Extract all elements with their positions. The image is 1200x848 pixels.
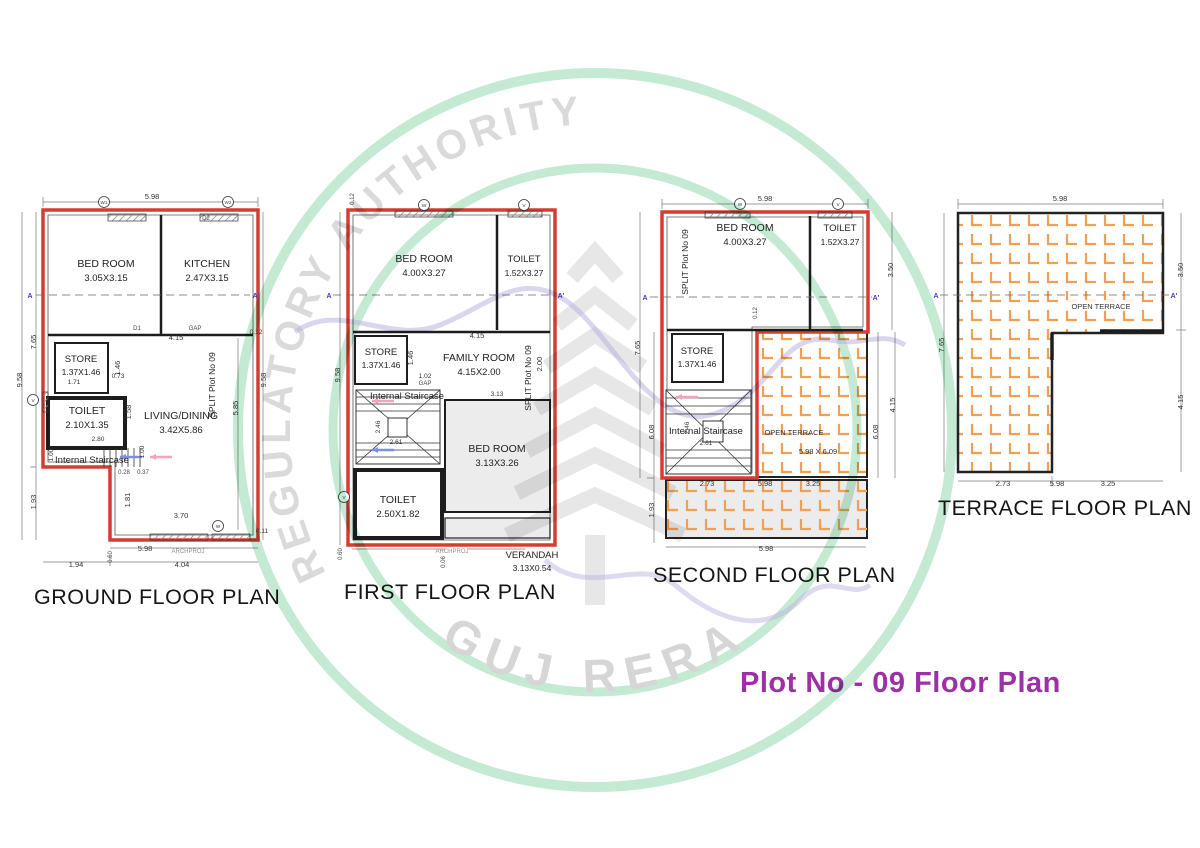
room-size: 2.50X1.82: [376, 509, 419, 520]
first-windows: [395, 211, 542, 217]
section-mark-a2: A': [1171, 293, 1178, 300]
room-size: 3.05X3.15: [84, 273, 127, 284]
room-name: BED ROOM: [468, 443, 525, 455]
room-size: 1.37X1.46: [62, 367, 101, 377]
room-size: 1.37X1.46: [678, 359, 717, 369]
plan-title-terrace: TERRACE FLOOR PLAN: [938, 496, 1192, 520]
room-name: OPEN TERRACE: [1071, 302, 1130, 311]
dim-label: 7.65: [29, 335, 38, 350]
room-size: 1.52X3.27: [505, 268, 544, 278]
room-size: 3.13X3.26: [475, 458, 518, 469]
dim-label: 1.93: [29, 495, 38, 510]
section-mark-a: A: [27, 293, 32, 300]
plan-title-second: SECOND FLOOR PLAN: [653, 563, 896, 587]
first-bed2-room: [445, 400, 550, 512]
dim-label: 5.98: [758, 194, 773, 203]
dim-label: 1.94: [69, 560, 84, 569]
dim-label: 5.98: [145, 192, 160, 201]
room-size: 3.42X5.86: [159, 425, 202, 436]
second-store-room: [672, 334, 723, 382]
dim-label: 4.04: [175, 560, 190, 569]
gap-tag: GAP: [189, 326, 202, 332]
dim-label: 4.15: [169, 333, 184, 342]
dim-label: 1.81: [123, 493, 132, 508]
dim-label: 1.02: [419, 373, 432, 380]
room-size: 1.37X1.46: [362, 360, 401, 370]
dim-label: 3.50: [1176, 263, 1185, 278]
dim-label: 5.98: [1053, 194, 1068, 203]
dim-label: 0.12: [753, 307, 759, 319]
window-tag-w1: W1: [101, 200, 108, 205]
plan-title-ground: GROUND FLOOR PLAN: [34, 585, 280, 609]
room-name: KITCHEN: [184, 258, 230, 270]
dim-label: 3.25: [806, 479, 821, 488]
dim-label: 0.06: [441, 556, 447, 568]
floor-plan-sheet: W1 W2 V W 5.98 D2 BED ROOM 3.05X3.15 KIT…: [0, 0, 1200, 848]
room-name: TOILET: [823, 223, 856, 234]
dim-label: 6.08: [871, 425, 880, 440]
dim-label: 1.58: [124, 405, 133, 420]
window-tag-w2: W2: [225, 200, 232, 205]
dim-label: 3.70: [174, 511, 189, 520]
plan-title-first: FIRST FLOOR PLAN: [344, 580, 556, 604]
sheet-heading: Plot No - 09 Floor Plan: [740, 667, 1061, 699]
dim-label: 2.73: [700, 479, 715, 488]
room-size: 5.98 X 6.09: [799, 447, 837, 456]
section-mark-a: A: [933, 293, 938, 300]
room-name: TOILET: [380, 494, 417, 506]
door-tag-d1: D1: [133, 326, 141, 332]
room-name: TOILET: [69, 405, 106, 417]
dim-label: 3.13: [491, 391, 504, 398]
room-size: 4.15X2.00: [457, 367, 500, 378]
window-tag-w: W: [422, 203, 427, 208]
section-mark-a2: A': [873, 295, 880, 302]
window-tag-w: W: [216, 524, 221, 529]
room-size: 2.47X3.15: [185, 273, 228, 284]
room-name: STORE: [365, 347, 398, 358]
dim-label: 3.50: [886, 263, 895, 278]
staircase-label: Internal Staircase: [370, 391, 444, 402]
gap-tag: GAP: [419, 381, 432, 387]
terrace-outline: [958, 213, 1163, 472]
dim-label: 4.15: [470, 331, 485, 340]
dim-label: 5.98: [758, 479, 773, 488]
room-name: BED ROOM: [77, 258, 134, 270]
dim-label: 4.15: [888, 398, 897, 413]
dim-label: 0.60: [108, 551, 114, 563]
archproj-label: ARCHPROJ: [171, 549, 204, 555]
room-name: OPEN TERRACE: [764, 428, 823, 437]
dim-label: 2.61: [700, 440, 713, 447]
dim-label: 0.28: [118, 470, 130, 476]
dim-label: 1.46: [406, 351, 415, 366]
dim-label: 2.00: [535, 357, 544, 372]
room-name: VERANDAH: [506, 550, 559, 561]
dim-label: 5.98: [759, 544, 774, 553]
archproj-label: ARCHPROJ: [435, 549, 468, 555]
dim-label: 1.71: [68, 379, 81, 386]
dim-label: 4.15: [1176, 395, 1185, 410]
dim-label: 2.73: [996, 479, 1011, 488]
floor-plan-drawing: W1 W2 V W 5.98 D2 BED ROOM 3.05X3.15 KIT…: [0, 0, 1200, 848]
dim-label: 9.58: [15, 373, 24, 388]
room-size: 4.00X3.27: [402, 268, 445, 279]
split-plot-label: SPLIT Plot No 09: [680, 229, 690, 295]
dim-label: 5.98: [138, 544, 153, 553]
section-mark-a: A: [642, 295, 647, 302]
room-size: 2.10X1.35: [65, 420, 108, 431]
dim-label: 2.46: [375, 420, 382, 433]
dim-label: 1.00: [48, 448, 55, 461]
split-plot-label: SPLIT Plot No 09: [207, 352, 217, 418]
room-name: FAMILY ROOM: [443, 352, 515, 364]
room-name: STORE: [681, 346, 714, 357]
staircase-label: Internal Staircase: [669, 426, 743, 437]
dim-label: 0.37: [137, 470, 149, 476]
room-size: 4.00X3.27: [723, 237, 766, 248]
door-tag-d2: D2: [202, 216, 210, 222]
room-size: 1.52X3.27: [821, 237, 860, 247]
room-size: 3.13X0.54: [513, 563, 552, 573]
dim-label: 3.25: [1101, 479, 1116, 488]
dim-label: 2.61: [390, 439, 403, 446]
dim-label: 0.73: [112, 373, 125, 380]
terrace-floor-plan: 5.98 A A' OPEN TERRACE 7.65 3.50 4.15 2.…: [933, 194, 1191, 520]
dim-label: 2.80: [92, 436, 105, 443]
dim-label: 5.98: [1050, 479, 1065, 488]
room-name: TOILET: [507, 254, 540, 265]
room-name: STORE: [65, 354, 98, 365]
split-plot-label: SPLIT Plot No 09: [523, 345, 533, 411]
staircase-label: Internal Staircase: [55, 455, 129, 466]
dim-label: 1.00: [139, 445, 146, 458]
watermark-bottom-text: GUJ RERA: [435, 605, 756, 702]
dim-label: 0.60: [338, 548, 344, 560]
